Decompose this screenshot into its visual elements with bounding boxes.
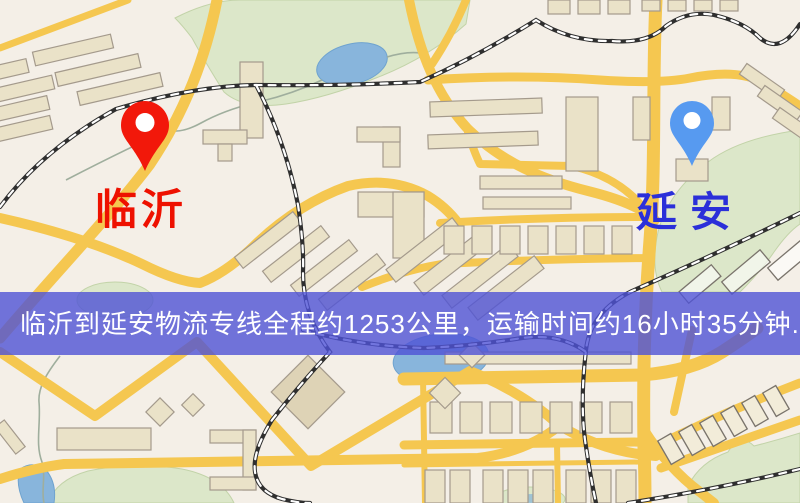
route-info-banner: 临沂到延安物流专线全程约1253公里，运输时间约16小时35分钟. — [0, 292, 800, 355]
route-info-text: 临沂到延安物流专线全程约1253公里，运输时间约16小时35分钟. — [20, 292, 800, 355]
logistics-route-map: 临沂 延安 临沂到延安物流专线全程约1253公里，运输时间约16小时35分钟. — [0, 0, 800, 503]
destination-city-label: 延安 — [636, 178, 744, 238]
origin-city-label: 临沂 — [95, 176, 187, 237]
map-image — [0, 0, 800, 503]
